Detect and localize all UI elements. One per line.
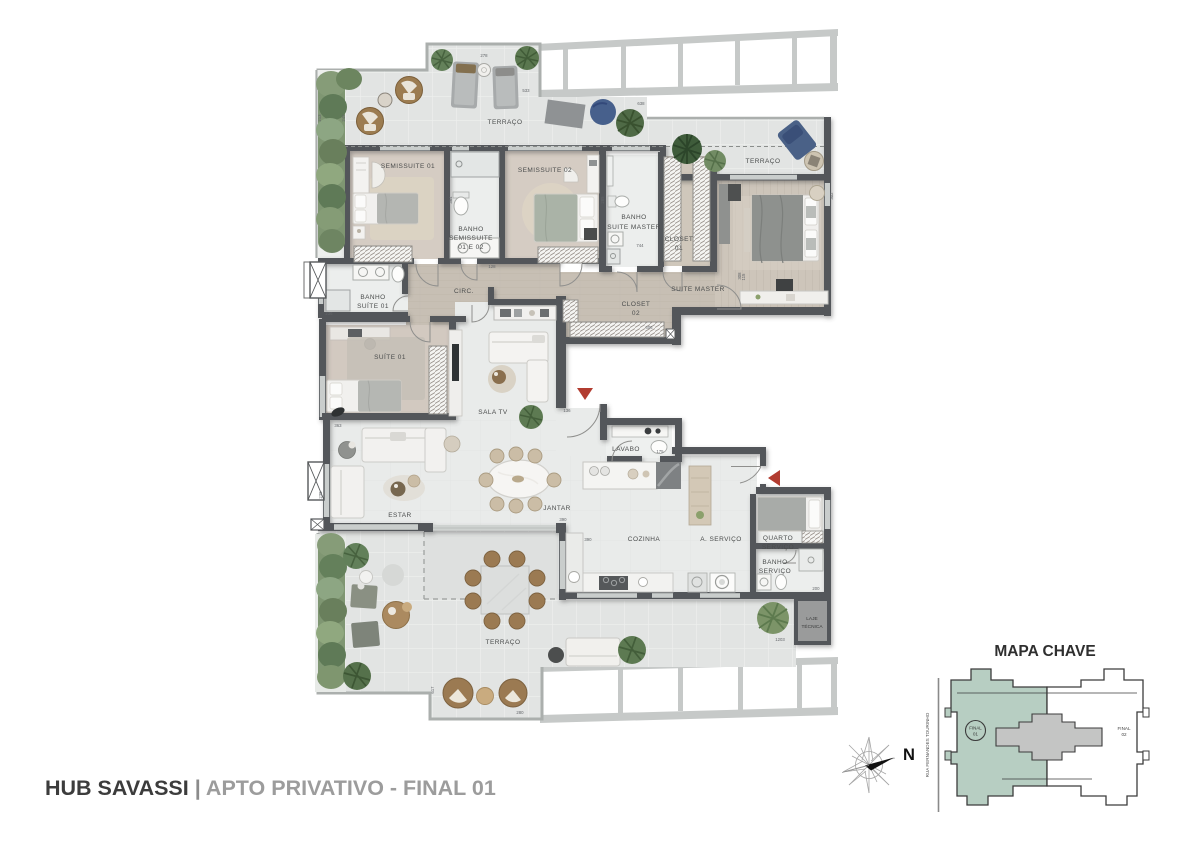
- svg-text:BANHO: BANHO: [360, 294, 385, 301]
- svg-text:390: 390: [584, 537, 592, 542]
- svg-text:280: 280: [516, 710, 524, 715]
- svg-text:236: 236: [325, 311, 333, 316]
- svg-text:01 E 02: 01 E 02: [458, 244, 484, 251]
- svg-text:TERRAÇO: TERRAÇO: [746, 158, 781, 165]
- svg-text:308: 308: [737, 272, 742, 280]
- svg-text:390: 390: [559, 517, 567, 522]
- svg-text:SUITE MASTER: SUITE MASTER: [607, 224, 660, 231]
- svg-text:MAPA CHAVE: MAPA CHAVE: [994, 643, 1095, 660]
- svg-text:406: 406: [645, 325, 653, 330]
- svg-text:BANHO: BANHO: [762, 559, 787, 566]
- svg-text:LAVABO: LAVABO: [612, 446, 640, 453]
- svg-text:QUARTO: QUARTO: [763, 535, 793, 542]
- svg-text:744: 744: [636, 243, 644, 248]
- svg-text:JANTAR: JANTAR: [543, 505, 571, 512]
- svg-text:ESTAR: ESTAR: [388, 512, 411, 519]
- svg-text:175: 175: [656, 449, 664, 454]
- svg-text:617: 617: [430, 686, 435, 694]
- svg-text:302: 302: [829, 192, 834, 200]
- svg-text:SERVIÇO: SERVIÇO: [762, 544, 794, 551]
- svg-text:SALA TV: SALA TV: [478, 409, 508, 416]
- svg-text:FINAL: FINAL: [969, 726, 982, 731]
- svg-text:TÉCNICA: TÉCNICA: [801, 623, 823, 630]
- svg-text:02: 02: [632, 310, 640, 317]
- svg-text:COZINHA: COZINHA: [628, 536, 661, 543]
- svg-text:SUÍTE 01: SUÍTE 01: [374, 352, 406, 361]
- svg-text:638: 638: [637, 101, 645, 106]
- svg-text:249: 249: [341, 114, 346, 122]
- svg-text:LAJE: LAJE: [806, 616, 817, 622]
- svg-text:SEMISSUITE 01: SEMISSUITE 01: [381, 163, 435, 170]
- svg-text:CIRC.: CIRC.: [454, 288, 474, 295]
- svg-text:01: 01: [675, 245, 683, 252]
- svg-text:SEMISSUITE 02: SEMISSUITE 02: [518, 167, 572, 174]
- svg-text:RUA FERNANDES TOURINHO: RUA FERNANDES TOURINHO: [925, 712, 930, 777]
- svg-text:238: 238: [318, 491, 323, 499]
- svg-text:FINAL: FINAL: [1117, 726, 1130, 731]
- svg-text:285: 285: [600, 196, 605, 204]
- svg-text:136: 136: [563, 408, 571, 413]
- svg-text:BANHO: BANHO: [458, 226, 483, 233]
- svg-text:213: 213: [317, 114, 322, 122]
- svg-text:1203: 1203: [775, 637, 785, 642]
- svg-text:364: 364: [448, 196, 453, 204]
- svg-text:SUÍTE 01: SUÍTE 01: [357, 301, 389, 310]
- svg-text:SUITE MASTER: SUITE MASTER: [671, 286, 724, 293]
- svg-text:128: 128: [488, 264, 496, 269]
- svg-text:363: 363: [334, 423, 342, 428]
- svg-text:TERRAÇO: TERRAÇO: [488, 119, 523, 126]
- svg-text:CLOSET: CLOSET: [622, 301, 651, 308]
- svg-text:200: 200: [812, 586, 820, 591]
- svg-text:TERRAÇO: TERRAÇO: [486, 639, 521, 646]
- svg-text:SEMISSUITE: SEMISSUITE: [449, 235, 493, 242]
- svg-text:533: 533: [522, 88, 530, 93]
- svg-text:N: N: [903, 746, 915, 764]
- svg-text:BANHO: BANHO: [621, 214, 646, 221]
- svg-text:02: 02: [1121, 732, 1127, 737]
- svg-text:01: 01: [973, 732, 978, 737]
- svg-text:SERVIÇO: SERVIÇO: [759, 568, 791, 575]
- svg-text:HUB SAVASSI | APTO PRIVATIVO -: HUB SAVASSI | APTO PRIVATIVO - FINAL 01: [45, 776, 496, 800]
- svg-text:278: 278: [480, 53, 488, 58]
- svg-text:CLOSET: CLOSET: [665, 236, 694, 243]
- svg-text:A. SERVIÇO: A. SERVIÇO: [700, 536, 742, 543]
